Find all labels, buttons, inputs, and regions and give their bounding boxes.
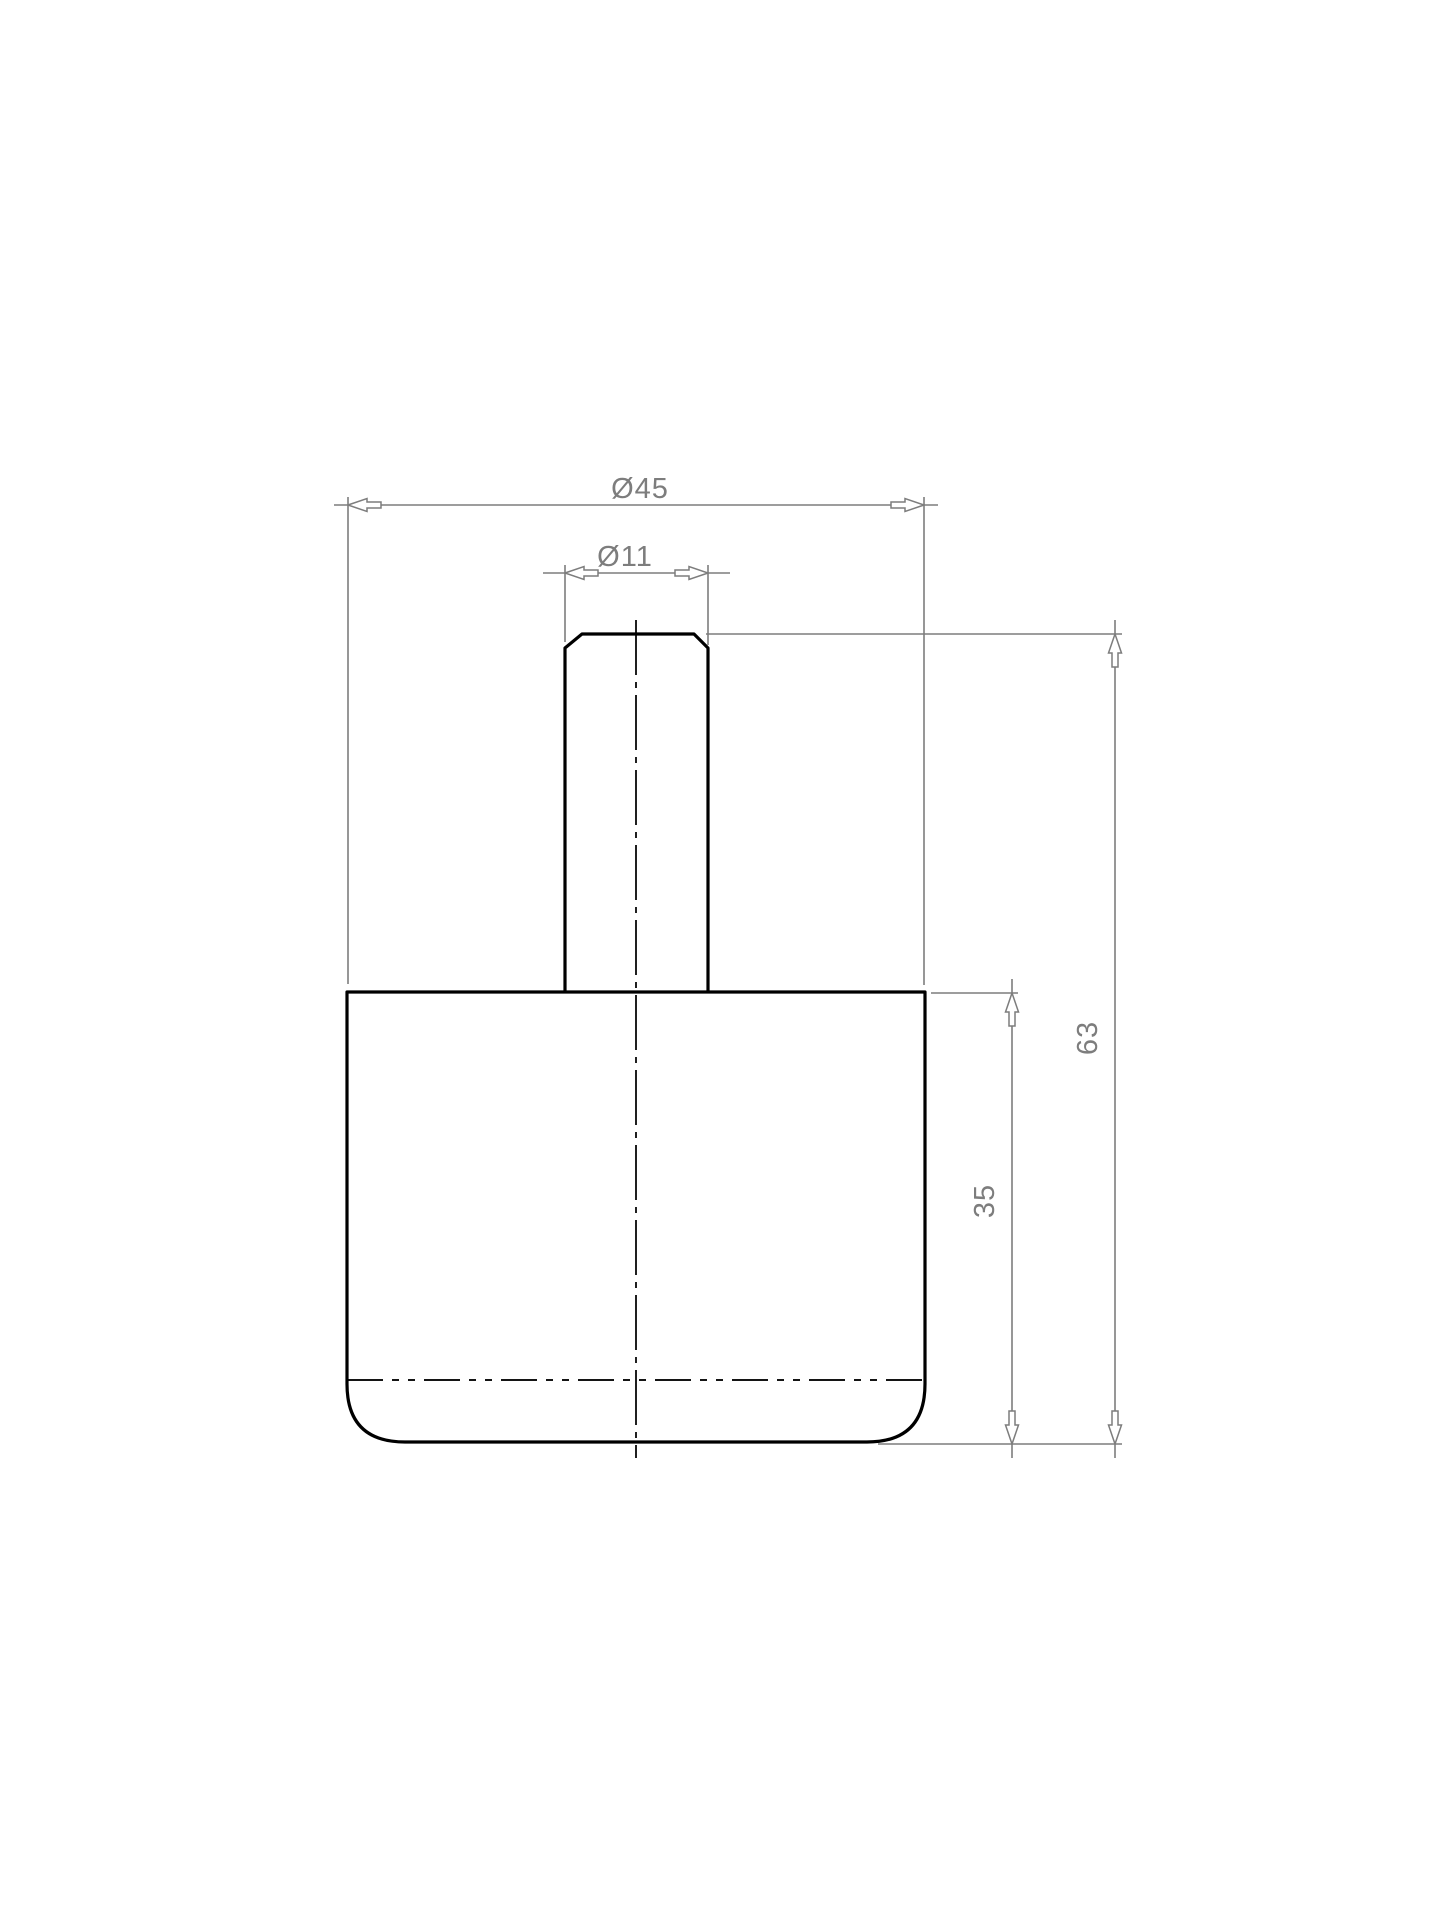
arrow-left-icon — [348, 499, 381, 512]
dim-outer-diameter: Ø45 — [334, 473, 938, 512]
extension-lines — [348, 497, 1122, 1444]
arrow-top-icon — [1109, 634, 1122, 667]
drawing-sheet: Ø45 Ø11 63 35 — [0, 0, 1440, 1920]
arrow-right-icon — [891, 499, 924, 512]
dim-outer-diameter-label: Ø45 — [611, 473, 669, 505]
dim-body-height: 35 — [969, 979, 1019, 1458]
arrow-bottom-icon — [1109, 1411, 1122, 1444]
arrow-bottom-icon — [1006, 1411, 1019, 1444]
dim-stem-diameter-label: Ø11 — [597, 541, 653, 573]
dim-overall-height: 63 — [1072, 620, 1122, 1458]
dim-stem-diameter: Ø11 — [543, 541, 730, 580]
centerlines — [347, 620, 925, 1458]
dim-body-height-label: 35 — [969, 1184, 1001, 1218]
dim-overall-height-label: 63 — [1072, 1021, 1104, 1055]
technical-drawing-canvas: Ø45 Ø11 63 35 — [0, 0, 1440, 1920]
arrow-top-icon — [1006, 993, 1019, 1026]
arrow-left-icon — [565, 567, 598, 580]
arrow-right-icon — [675, 567, 708, 580]
